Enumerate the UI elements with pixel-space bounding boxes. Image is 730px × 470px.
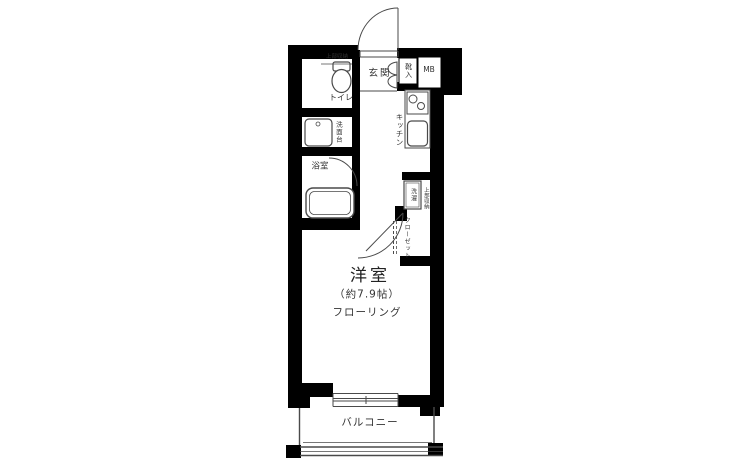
room-size-label: （約7.9帖）	[334, 289, 400, 300]
floorplan-page: 玄関 靴入 MB 上部収納 トイレ 洗面台 浴室 キッチン 洗濯 上部収納 クロ…	[0, 0, 730, 470]
floorplan-drawing	[0, 0, 730, 470]
kitchen-label: キッチン	[395, 113, 403, 147]
room-flooring-label: フローリング	[333, 307, 402, 318]
wall-segment	[402, 172, 430, 180]
wall-segment	[430, 55, 444, 407]
toilet-label: トイレ	[329, 94, 353, 102]
washstand-sink-icon	[305, 119, 332, 146]
wall-segment	[302, 147, 360, 156]
bathtub-icon	[306, 188, 354, 218]
wall-segment	[288, 383, 310, 408]
wall-segment	[288, 218, 360, 230]
entrance-threshold	[360, 51, 398, 57]
walls	[286, 45, 462, 458]
wall-segment	[352, 50, 360, 148]
balcony-post	[428, 443, 443, 456]
toilet-upper-storage-label: 上部収納	[326, 55, 348, 61]
balcony-post	[286, 445, 301, 458]
wall-segment	[302, 108, 355, 117]
wall-segment	[420, 405, 440, 416]
wall-segment	[444, 48, 462, 95]
balcony-label: バルコニー	[341, 417, 398, 428]
closet-label: クローゼット	[403, 217, 409, 259]
bathroom-label: 浴室	[311, 163, 328, 172]
washstand-label: 洗面台	[335, 121, 342, 144]
toilet-bowl-icon	[332, 70, 351, 93]
entrance-label: 玄関	[368, 69, 391, 79]
meter-box-label: MB	[423, 66, 435, 74]
laundry-upper-storage-label: 上部収納	[422, 187, 428, 209]
balcony-window	[333, 394, 398, 407]
room-label: 洋室	[350, 268, 390, 286]
laundry-label: 洗濯	[409, 188, 415, 202]
room-door-leaf	[366, 213, 403, 251]
entrance-door-arc	[358, 8, 398, 50]
shoe-cabinet-label: 靴入	[404, 63, 411, 79]
